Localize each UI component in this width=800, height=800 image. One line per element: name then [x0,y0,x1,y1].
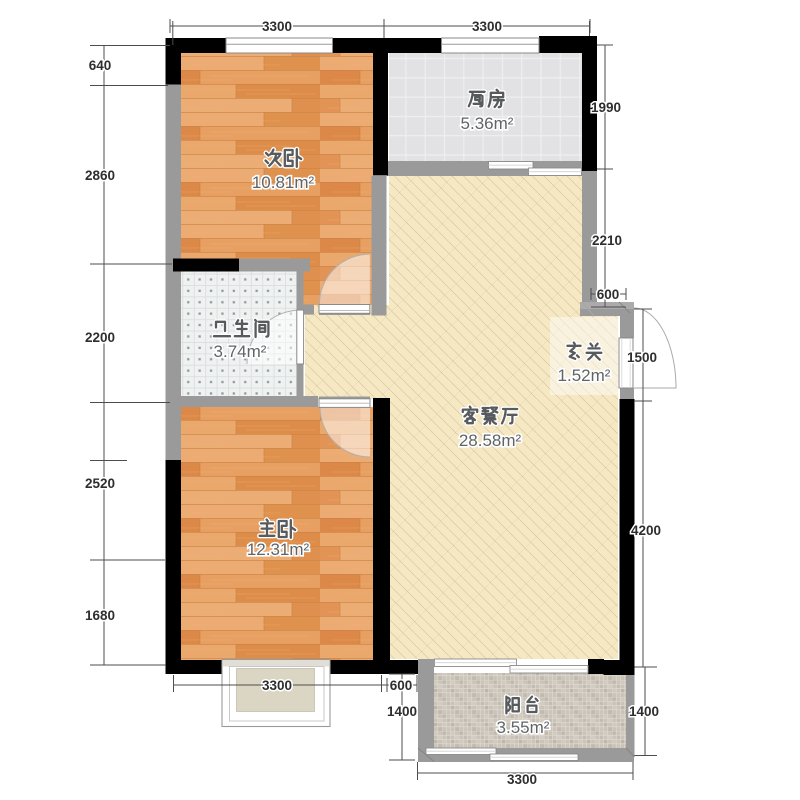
svg-text:2200: 2200 [85,330,115,345]
svg-text:3.55m²: 3.55m² [497,718,550,737]
svg-text:1990: 1990 [591,100,621,115]
svg-text:2210: 2210 [592,233,622,248]
svg-text:3300: 3300 [472,19,502,34]
svg-text:2860: 2860 [85,168,115,183]
svg-text:2520: 2520 [85,476,115,491]
svg-text:1400: 1400 [629,704,659,719]
svg-text:600: 600 [597,287,620,302]
svg-text:10.81m²: 10.81m² [252,173,315,192]
svg-text:1500: 1500 [627,350,657,365]
svg-text:4200: 4200 [631,523,661,538]
svg-text:1680: 1680 [85,608,115,623]
svg-text:28.58m²: 28.58m² [459,431,522,450]
svg-text:1.52m²: 1.52m² [558,366,611,385]
svg-text:3300: 3300 [507,772,537,787]
svg-text:3.74m²: 3.74m² [214,342,267,361]
svg-text:1400: 1400 [387,704,417,719]
svg-text:640: 640 [89,58,112,73]
svg-text:600: 600 [390,678,413,693]
svg-text:12.31m²: 12.31m² [247,540,310,559]
svg-text:5.36m²: 5.36m² [461,114,514,133]
svg-text:3300: 3300 [262,19,292,34]
svg-text:3300: 3300 [262,678,292,693]
